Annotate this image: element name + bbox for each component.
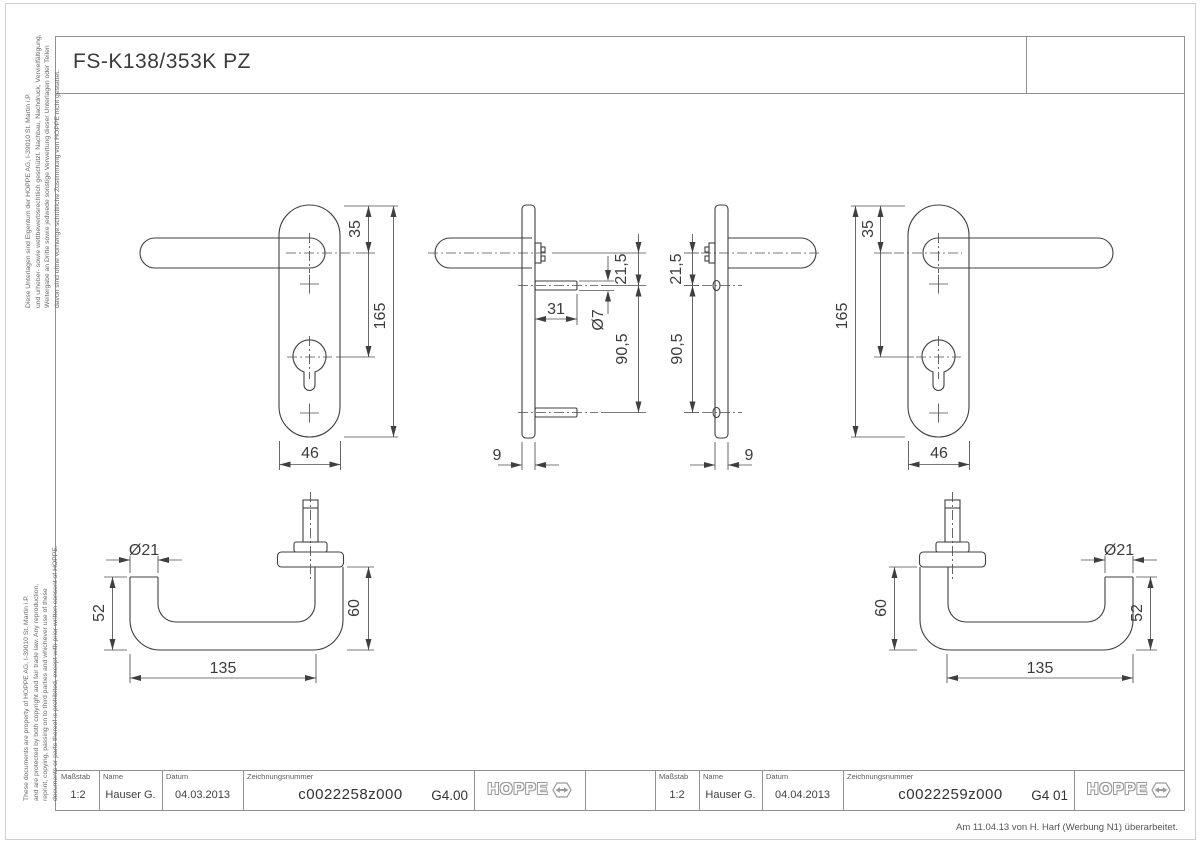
name-label-left: Name (103, 772, 123, 781)
dim-top-left-grip-diameter: Ø21 (129, 542, 159, 560)
dim-side-left-plate-thickness: 9 (493, 447, 502, 465)
drawing-number-label-left: Zeichnungsnummer (247, 772, 313, 781)
margin-note-english: These documents are property of HOPPE AG… (22, 545, 61, 801)
hoppe-logo-left: HOPPE (474, 770, 585, 810)
dim-side-left-handle-to-pin: 21,5 (613, 253, 631, 284)
side-view-right (684, 205, 822, 470)
margin-note-line: und urheber- sowie wettbewerbsrechtlich … (34, 34, 44, 308)
dim-top-right-handle-height: 60 (873, 599, 891, 617)
dim-side-left-pin-length: 31 (547, 301, 565, 319)
dim-front-right-plate-width: 46 (930, 445, 948, 463)
dim-side-right-handle-to-pin: 21,5 (668, 253, 686, 284)
dim-front-left-top-to-handle: 35 (347, 220, 365, 238)
dim-top-right-grip-end-height: 52 (1129, 604, 1147, 622)
date-value-left: 04.03.2013 (162, 789, 243, 801)
margin-note-german: Diese Unterlagen sind Eigentum der HOPPE… (24, 34, 63, 308)
dim-side-left-pin-diameter: Ø7 (590, 309, 608, 330)
front-view-left (140, 205, 398, 470)
dim-front-right-top-to-handle: 35 (860, 220, 878, 238)
technical-drawing-canvas (0, 0, 1200, 849)
name-value-left: Hauser G. (99, 789, 162, 801)
dim-front-left-plate-height: 165 (372, 303, 390, 330)
top-view-handle-right (889, 492, 1157, 683)
dim-front-right-plate-height: 165 (834, 303, 852, 330)
scale-value-left: 1:2 (57, 789, 99, 801)
scale-label-right: Maßstab (659, 772, 688, 781)
revision-right: G4 01 (1006, 788, 1068, 803)
revision-note: Am 11.04.13 von H. Harf (Werbung N1) übe… (820, 822, 1178, 833)
hoppe-logo-right: HOPPE (1074, 770, 1184, 810)
margin-note-line: and are protected by both copyright and … (32, 545, 42, 801)
name-label-right: Name (703, 772, 723, 781)
margin-note-line: documents or parts thereof is prohibited… (51, 545, 61, 801)
scale-value-right: 1:2 (655, 789, 699, 801)
drawing-sheet: FS-K138/353K PZ Diese Unterlagen sind Ei… (0, 0, 1200, 849)
dim-side-right-plate-thickness: 9 (745, 447, 754, 465)
dim-top-left-grip-end-height: 52 (91, 604, 109, 622)
dim-top-right-handle-length: 135 (1027, 660, 1054, 678)
hoppe-hexagon-icon (552, 781, 572, 799)
hoppe-wordmark: HOPPE (1087, 781, 1148, 799)
revision-left: G4.00 (406, 788, 468, 803)
drawing-number-label-right: Zeichnungsnummer (847, 772, 913, 781)
date-value-right: 04.04.2013 (762, 789, 843, 801)
name-value-right: Hauser G. (699, 789, 762, 801)
margin-note-line: Weitergabe an Dritte sowie jedwede sonst… (43, 34, 53, 308)
front-view-right (851, 205, 1113, 470)
dim-top-left-handle-length: 135 (210, 660, 237, 678)
page-title: FS-K138/353K PZ (73, 50, 251, 74)
top-view-handle-left (104, 492, 374, 683)
scale-label-left: Maßstab (61, 772, 90, 781)
dim-top-right-grip-diameter: Ø21 (1104, 542, 1134, 560)
hoppe-hexagon-icon (1151, 781, 1171, 799)
dim-side-right-pin-spacing: 90,5 (669, 333, 687, 364)
dim-top-left-handle-height: 60 (346, 599, 364, 617)
margin-note-line: reprint, copying, passing on to third pa… (41, 545, 51, 801)
dim-side-left-pin-spacing: 90,5 (614, 333, 632, 364)
margin-note-line: davon sind ohne vorherige schriftliche Z… (53, 34, 63, 308)
sheet-frame (56, 37, 1185, 811)
margin-note-line: These documents are property of HOPPE AG… (22, 545, 32, 801)
hoppe-wordmark: HOPPE (487, 781, 548, 799)
dim-front-left-plate-width: 46 (301, 445, 319, 463)
margin-note-line: Diese Unterlagen sind Eigentum der HOPPE… (24, 34, 34, 308)
date-label-right: Datum (766, 772, 788, 781)
date-label-left: Datum (166, 772, 188, 781)
